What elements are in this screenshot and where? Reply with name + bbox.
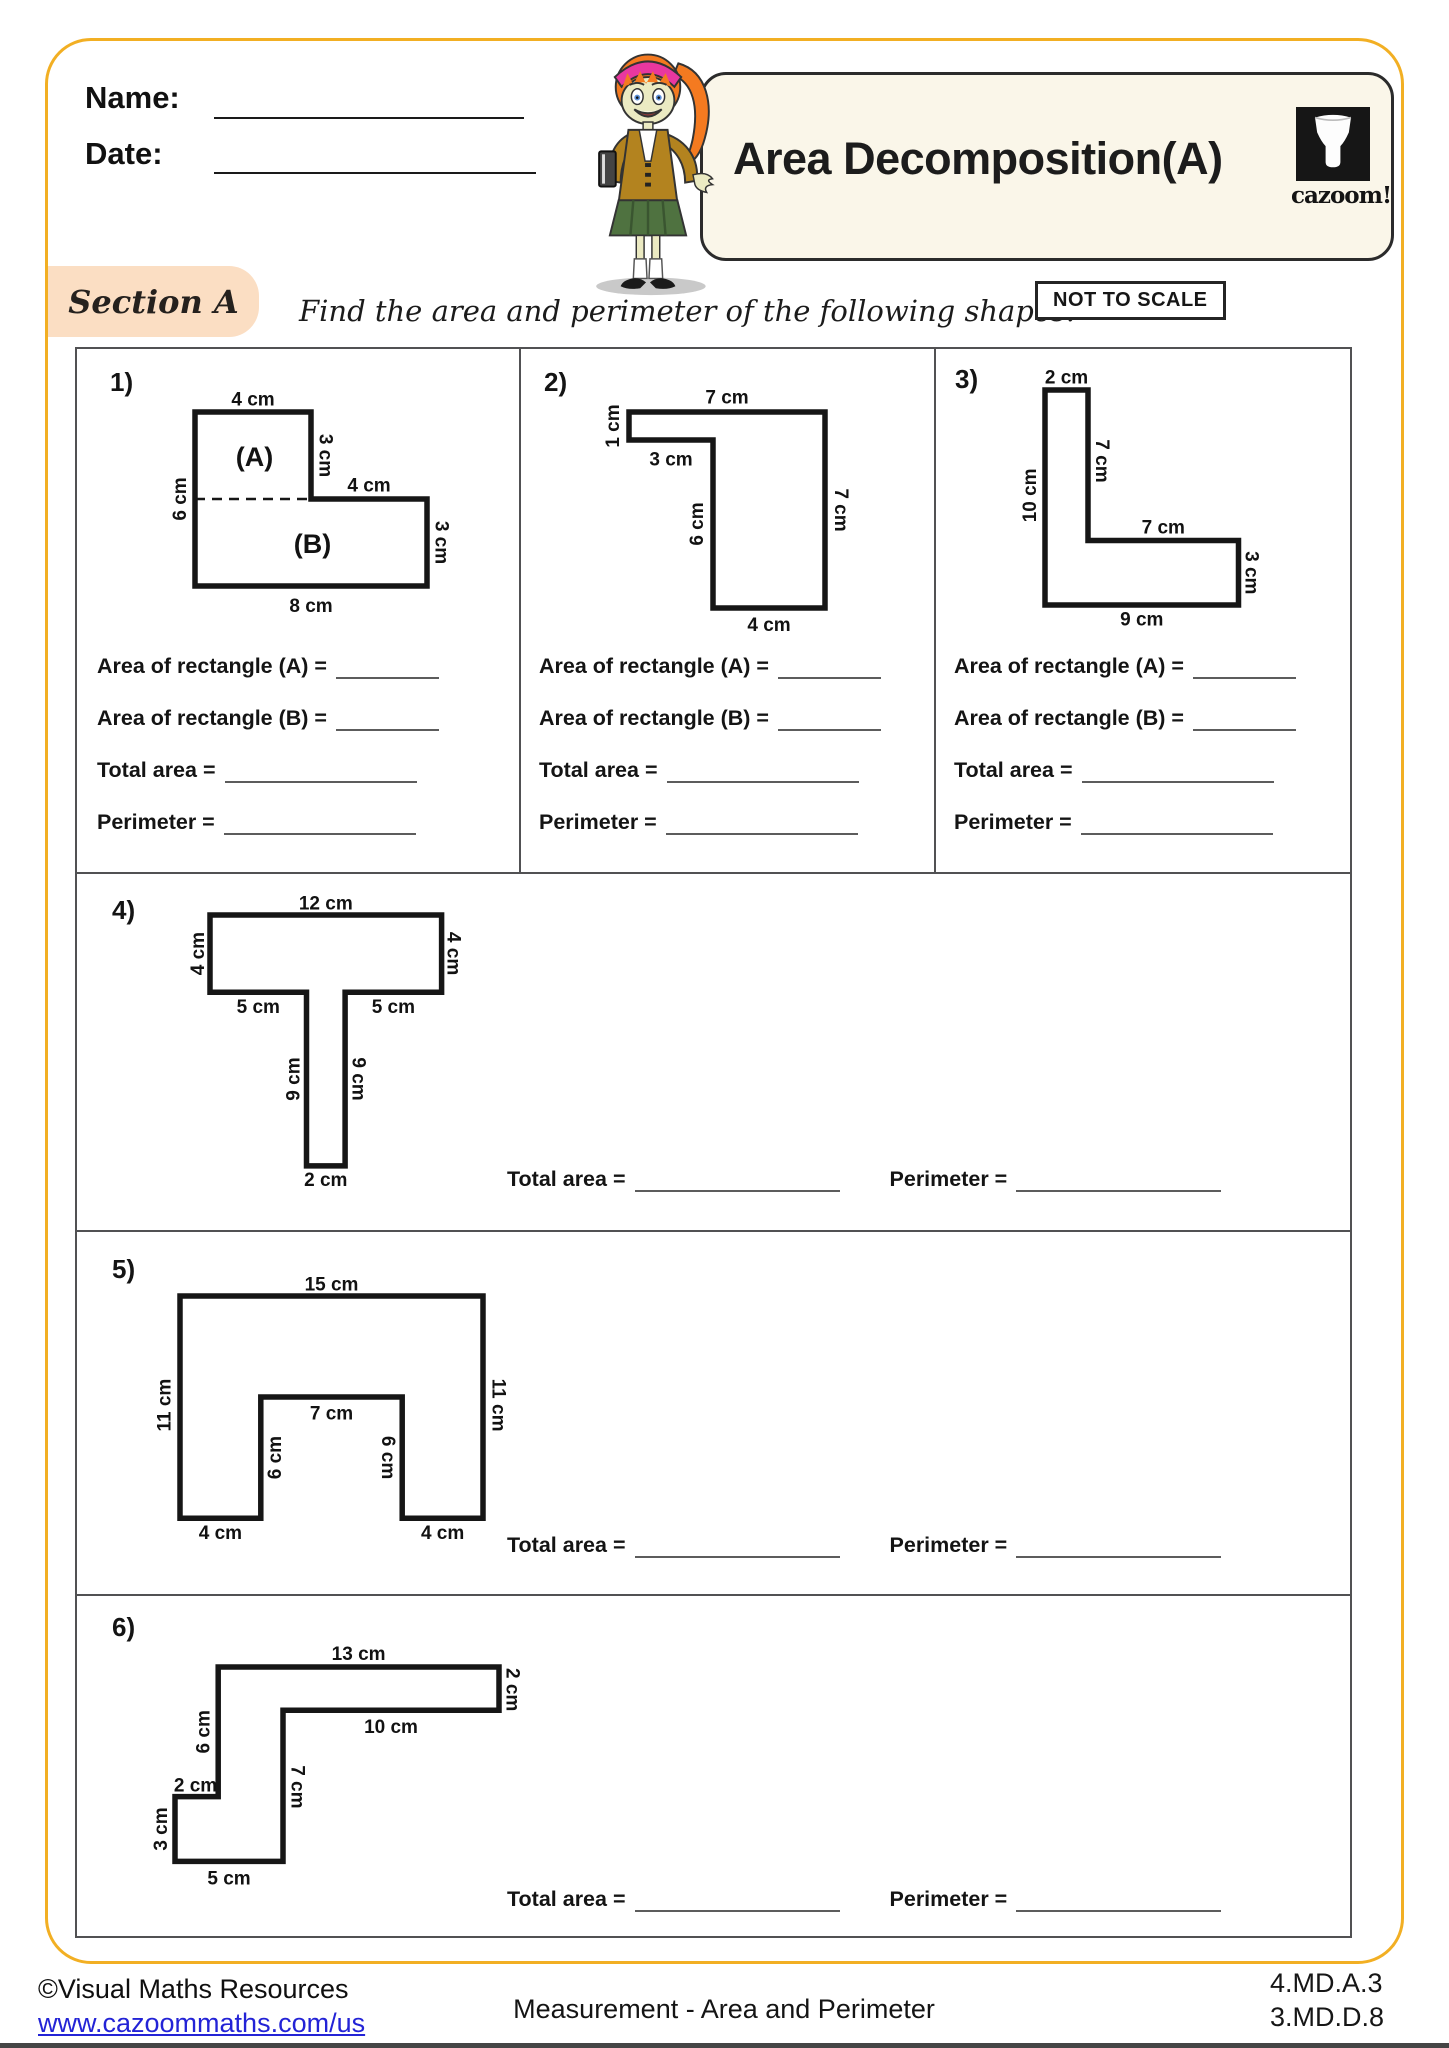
svg-text:3 cm: 3 cm xyxy=(314,434,335,477)
area-b-label: Area of rectangle (B) = xyxy=(539,706,769,731)
grid-divider-horizontal xyxy=(77,1230,1350,1232)
area-a-label: Area of rectangle (A) = xyxy=(539,654,769,679)
svg-text:2 cm: 2 cm xyxy=(174,1775,217,1796)
problem-2-answers: Area of rectangle (A) = Area of rectangl… xyxy=(539,648,910,856)
total-area-label: Total area = xyxy=(507,1533,626,1558)
svg-text:4 cm: 4 cm xyxy=(421,1523,464,1544)
answer-blank xyxy=(778,651,881,679)
svg-text:7 cm: 7 cm xyxy=(830,488,851,531)
svg-text:9 cm: 9 cm xyxy=(1120,610,1163,631)
answer-blank xyxy=(635,1884,840,1912)
footer-website-link[interactable]: www.cazoommaths.com/us xyxy=(38,2008,365,2039)
svg-text:2 cm: 2 cm xyxy=(501,1668,522,1711)
svg-text:13 cm: 13 cm xyxy=(332,1644,386,1665)
svg-text:10 cm: 10 cm xyxy=(1020,468,1041,522)
total-area-label: Total area = xyxy=(97,758,216,783)
worksheet-title: Area Decomposition(A) xyxy=(733,133,1223,185)
problem-4-answers: Total area = Perimeter = xyxy=(507,1164,1221,1192)
svg-text:3 cm: 3 cm xyxy=(430,521,451,564)
name-blank-line xyxy=(214,117,524,119)
answer-blank xyxy=(1082,755,1274,783)
svg-text:3 cm: 3 cm xyxy=(1240,551,1261,594)
svg-text:5 cm: 5 cm xyxy=(207,1869,250,1890)
problem-4-number: 4) xyxy=(112,895,135,926)
svg-text:6 cm: 6 cm xyxy=(687,502,708,545)
answer-blank xyxy=(1016,1884,1221,1912)
svg-text:5 cm: 5 cm xyxy=(372,997,415,1018)
grid-divider-horizontal xyxy=(77,872,1350,874)
problem-3-shape: 2 cm7 cm10 cm7 cm3 cm9 cm xyxy=(967,362,1302,647)
svg-text:4 cm: 4 cm xyxy=(231,389,274,410)
footer-standard-1: 4.MD.A.3 xyxy=(1270,1968,1383,1999)
svg-text:5 cm: 5 cm xyxy=(237,997,280,1018)
answer-blank xyxy=(1193,703,1296,731)
answer-blank xyxy=(666,807,858,835)
section-a-label: Section A xyxy=(68,283,238,321)
svg-text:2 cm: 2 cm xyxy=(304,1170,347,1191)
svg-text:7 cm: 7 cm xyxy=(1142,518,1185,539)
answer-blank xyxy=(1193,651,1296,679)
answer-blank xyxy=(225,755,417,783)
problem-1-answers: Area of rectangle (A) = Area of rectangl… xyxy=(97,648,495,856)
svg-text:4 cm: 4 cm xyxy=(443,932,464,975)
svg-text:10 cm: 10 cm xyxy=(364,1717,418,1738)
answer-blank xyxy=(224,807,416,835)
drum-icon xyxy=(1296,107,1370,181)
footer-topic: Measurement - Area and Perimeter xyxy=(513,1994,935,2025)
answer-blank xyxy=(635,1164,840,1192)
perimeter-label: Perimeter = xyxy=(954,810,1072,835)
svg-text:11 cm: 11 cm xyxy=(488,1379,509,1432)
svg-text:8 cm: 8 cm xyxy=(289,596,332,617)
name-label: Name: xyxy=(85,80,180,116)
problems-grid: 1) Area of rectangle (A) = Area of recta… xyxy=(75,347,1352,1938)
svg-text:(A): (A) xyxy=(236,442,273,472)
cazoom-logo: cazoom! xyxy=(1291,107,1375,209)
perimeter-label: Perimeter = xyxy=(97,810,215,835)
svg-text:12 cm: 12 cm xyxy=(299,893,353,914)
footer-copyright: ©Visual Maths Resources xyxy=(38,1974,349,2005)
svg-text:(B): (B) xyxy=(294,529,331,559)
svg-text:4 cm: 4 cm xyxy=(188,932,209,975)
svg-text:9 cm: 9 cm xyxy=(283,1057,304,1100)
svg-text:6 cm: 6 cm xyxy=(170,477,191,520)
svg-text:4 cm: 4 cm xyxy=(199,1523,242,1544)
total-area-label: Total area = xyxy=(507,1887,626,1912)
date-blank-line xyxy=(214,172,536,174)
svg-text:4 cm: 4 cm xyxy=(747,615,790,636)
total-area-label: Total area = xyxy=(539,758,658,783)
answer-blank xyxy=(1081,807,1273,835)
svg-text:3 cm: 3 cm xyxy=(649,450,692,471)
total-area-label: Total area = xyxy=(507,1167,626,1192)
instruction-text: Find the area and perimeter of the follo… xyxy=(299,294,1075,328)
area-a-label: Area of rectangle (A) = xyxy=(97,654,327,679)
area-b-label: Area of rectangle (B) = xyxy=(954,706,1184,731)
problem-6-shape: 13 cm2 cm10 cm6 cm7 cm2 cm3 cm5 cm xyxy=(132,1620,562,1910)
problem-4-shape: 12 cm4 cm4 cm5 cm5 cm9 cm9 cm2 cm xyxy=(142,882,487,1207)
svg-text:7 cm: 7 cm xyxy=(287,1765,308,1808)
svg-text:6 cm: 6 cm xyxy=(377,1436,398,1479)
worksheet-page: Name: Date: xyxy=(0,0,1449,2048)
svg-text:15 cm: 15 cm xyxy=(305,1274,359,1295)
mascot-illustration xyxy=(550,36,746,298)
area-b-label: Area of rectangle (B) = xyxy=(97,706,327,731)
problem-2-shape: 7 cm1 cm3 cm6 cm7 cm4 cm xyxy=(557,374,887,649)
svg-text:7 cm: 7 cm xyxy=(1091,439,1112,482)
answer-blank xyxy=(667,755,859,783)
svg-text:9 cm: 9 cm xyxy=(348,1057,369,1100)
svg-text:1 cm: 1 cm xyxy=(603,404,624,447)
title-box: Area Decomposition(A) cazoom! xyxy=(700,72,1394,261)
area-a-label: Area of rectangle (A) = xyxy=(954,654,1184,679)
svg-text:11 cm: 11 cm xyxy=(154,1379,175,1432)
date-label: Date: xyxy=(85,136,163,172)
total-area-label: Total area = xyxy=(954,758,1073,783)
logo-wordmark: cazoom! xyxy=(1291,182,1375,209)
not-to-scale-badge: NOT TO SCALE xyxy=(1035,281,1226,320)
problem-3-answers: Area of rectangle (A) = Area of rectangl… xyxy=(954,648,1326,856)
svg-text:3 cm: 3 cm xyxy=(151,1807,172,1850)
svg-text:4 cm: 4 cm xyxy=(347,476,390,497)
answer-blank xyxy=(1016,1530,1221,1558)
perimeter-label: Perimeter = xyxy=(890,1167,1008,1192)
answer-blank xyxy=(1016,1164,1221,1192)
svg-text:2 cm: 2 cm xyxy=(1045,368,1088,389)
grid-divider-horizontal xyxy=(77,1594,1350,1596)
svg-text:7 cm: 7 cm xyxy=(705,388,748,409)
footer-standard-2: 3.MD.D.8 xyxy=(1270,2002,1384,2033)
answer-blank xyxy=(336,703,439,731)
perimeter-label: Perimeter = xyxy=(890,1533,1008,1558)
answer-blank xyxy=(635,1530,840,1558)
section-a-pill: Section A xyxy=(48,266,259,337)
svg-text:6 cm: 6 cm xyxy=(265,1436,286,1479)
page-edge xyxy=(0,2043,1449,2048)
svg-text:6 cm: 6 cm xyxy=(194,1710,215,1753)
problem-1-shape: 4 cm3 cm4 cm3 cm8 cm6 cm(A)(B) xyxy=(127,364,477,639)
answer-blank xyxy=(778,703,881,731)
problem-5-answers: Total area = Perimeter = xyxy=(507,1530,1221,1558)
answer-blank xyxy=(336,651,439,679)
perimeter-label: Perimeter = xyxy=(539,810,657,835)
problem-6-answers: Total area = Perimeter = xyxy=(507,1884,1221,1912)
perimeter-label: Perimeter = xyxy=(890,1887,1008,1912)
svg-text:7 cm: 7 cm xyxy=(310,1404,353,1425)
problem-5-shape: 15 cm11 cm11 cm7 cm6 cm6 cm4 cm4 cm xyxy=(112,1250,532,1555)
